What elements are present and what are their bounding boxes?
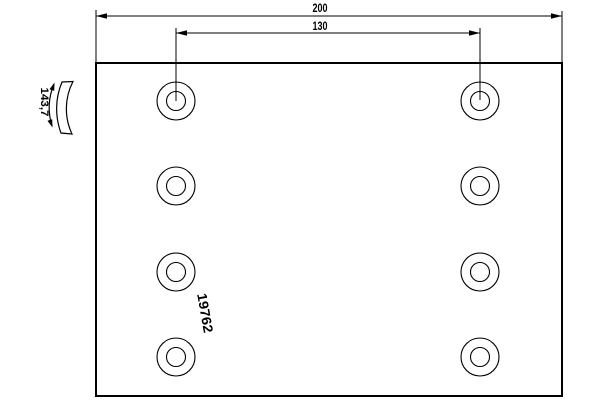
part-outline	[96, 63, 562, 396]
hole-inner-circle	[167, 348, 186, 367]
arrowhead-left-icon	[96, 13, 107, 18]
rivet-hole	[157, 167, 195, 205]
hole-outer-circle	[461, 338, 499, 376]
hole-inner-circle	[471, 348, 490, 367]
dimension-overall-length	[96, 10, 562, 63]
arc-arrowhead-bottom-icon	[48, 119, 53, 127]
rivet-hole	[461, 253, 499, 291]
dim-label-overall-length: 200	[313, 1, 328, 15]
hole-outer-circle	[157, 338, 195, 376]
rivet-hole	[157, 338, 195, 376]
hole-outer-circle	[461, 167, 499, 205]
dim-label-hole-spacing: 130	[313, 19, 328, 33]
drawing-canvas: 200 130 143,7 19762	[0, 0, 600, 400]
hole-inner-circle	[167, 177, 186, 196]
dim-label-arc-width: 143,7	[38, 88, 50, 117]
dimension-hole-spacing	[176, 28, 480, 101]
hole-outer-circle	[461, 253, 499, 291]
rivet-hole	[461, 167, 499, 205]
lining-section-band	[57, 82, 73, 135]
arrowhead-right-icon	[551, 13, 562, 18]
part-number-label: 19762	[194, 292, 216, 334]
hole-outer-circle	[157, 167, 195, 205]
arrowhead-right-icon	[469, 30, 480, 35]
rivet-hole	[157, 253, 195, 291]
hole-inner-circle	[471, 263, 490, 282]
rivet-hole	[461, 338, 499, 376]
hole-inner-circle	[471, 177, 490, 196]
arrowhead-left-icon	[176, 30, 187, 35]
hole-inner-circle	[167, 263, 186, 282]
technical-drawing: 200 130 143,7 19762	[0, 0, 600, 400]
hole-outer-circle	[157, 253, 195, 291]
